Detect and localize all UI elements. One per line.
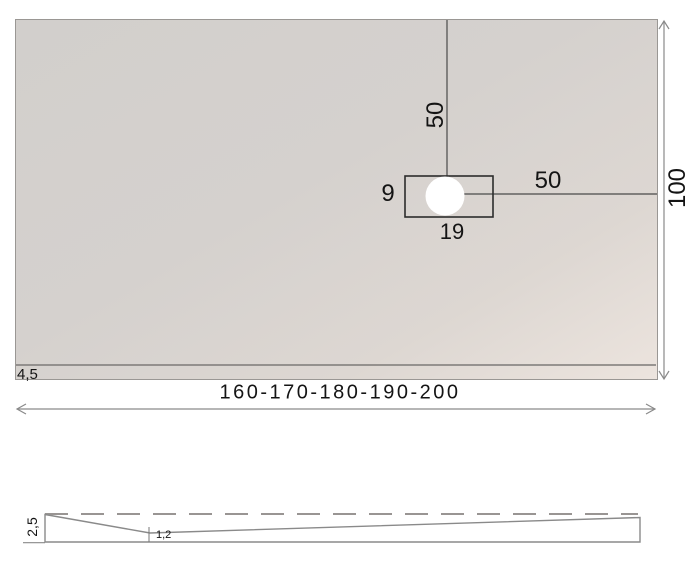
dim-label-drain-offset-top: 50 [422, 102, 450, 129]
dim-label-length-range: 160-170-180-190-200 [220, 382, 461, 405]
dim-label-drain-offset-right: 50 [535, 167, 562, 195]
dim-label-drain-recess-width: 19 [440, 219, 464, 245]
dim-label-profile-edge-thickness: 2,5 [24, 517, 40, 536]
dim-label-tray-width: 100 [664, 168, 692, 208]
technical-drawing: 50 50 9 19 100 4,5 160-170-180-190-200 2… [0, 0, 700, 571]
drain-hole [426, 177, 465, 216]
dim-label-border-width: 4,5 [17, 366, 38, 383]
dim-label-drain-recess-height: 9 [381, 180, 394, 208]
dim-label-profile-center-thickness: 1,2 [156, 529, 171, 541]
profile-body [45, 515, 640, 543]
drawing-linework [0, 0, 700, 571]
